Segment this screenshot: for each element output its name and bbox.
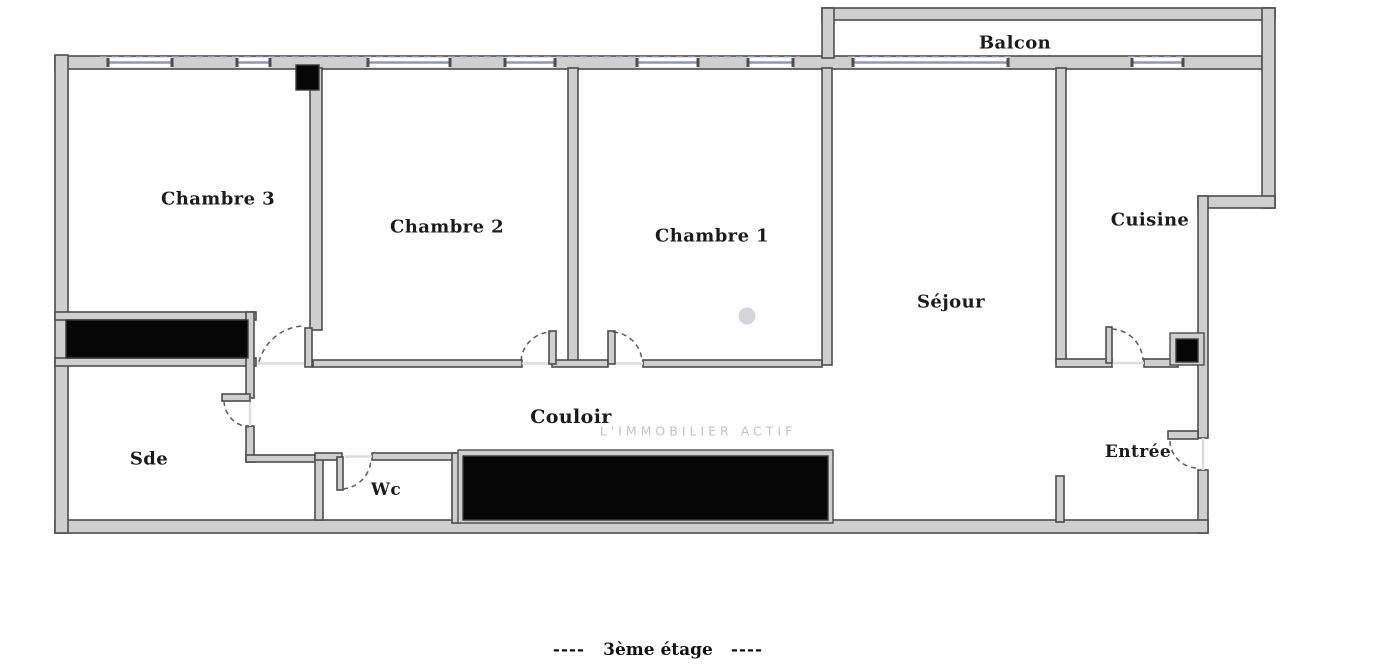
door-leaf-cuisine [1106,327,1112,363]
door-leaf-chambre2 [549,331,556,364]
door-arc-sde [224,401,249,427]
wall [1198,196,1275,208]
void-block-upper [66,320,248,358]
window-chambre3-2 [236,58,272,68]
wall [55,358,256,366]
door-leaf-entree [1168,431,1198,439]
kitchen-duct-block [1176,339,1198,362]
room-label-sejour: Séjour [917,292,985,313]
door-leaf-sde [222,394,250,401]
wall [55,55,68,533]
void-block-lower [463,456,828,520]
door-arc-cuisine [1112,329,1143,360]
door-arc-entree [1170,441,1196,468]
room-label-balcon: Balcon [979,33,1051,54]
wall [568,68,578,364]
floor-plan-drawing [0,0,1400,672]
wall [1056,476,1064,522]
door-arc-wc [343,459,371,489]
wall [310,68,322,330]
wall [1056,359,1112,367]
wall [822,8,834,58]
wall [55,312,256,320]
door-leaf-wc [337,457,343,490]
door-leaf-chambre3 [305,328,312,367]
window-chambre2-1 [367,58,452,68]
door-arc-chambre2 [521,332,551,361]
window-chambre3-1 [107,58,174,68]
wall [1056,68,1066,362]
window-chambre2-2 [504,58,557,68]
wall [643,360,822,367]
floor-caption: ---- 3ème étage ---- [553,640,763,660]
window-cuisine [1131,58,1185,68]
watermark-dot [739,308,756,325]
room-label-sde: Sde [130,449,168,470]
caption-dashes-right: ---- [731,640,763,660]
wall [372,453,460,460]
window-chambre1-2 [747,58,795,68]
room-label-chambre1: Chambre 1 [655,226,769,247]
door-arc-chambre3 [259,326,303,362]
wall [552,360,608,367]
chimney-block [296,65,319,90]
room-label-chambre2: Chambre 2 [390,217,504,238]
wall [822,68,832,365]
caption-dashes-left: ---- [553,640,585,660]
wall [315,455,323,520]
room-label-entree: Entrée [1105,442,1171,462]
window-chambre1-1 [636,58,700,68]
room-label-wc: Wc [371,480,401,500]
window-sejour [852,58,1010,68]
room-label-cuisine: Cuisine [1111,210,1190,231]
room-label-chambre3: Chambre 3 [161,189,275,210]
wall [246,455,322,462]
watermark-text: L'IMMOBILIER ACTIF [600,424,797,439]
wall [313,360,522,367]
caption-text: 3ème étage [603,640,713,660]
void-masses-layer [66,65,1198,523]
wall [1262,8,1275,208]
wall [1198,196,1208,438]
door-arc-chambre1 [613,332,642,361]
floor-plan: Balcon Chambre 3 Chambre 2 Chambre 1 Séj… [0,0,1400,672]
door-leaf-chambre1 [608,331,615,364]
wall [822,8,1275,20]
